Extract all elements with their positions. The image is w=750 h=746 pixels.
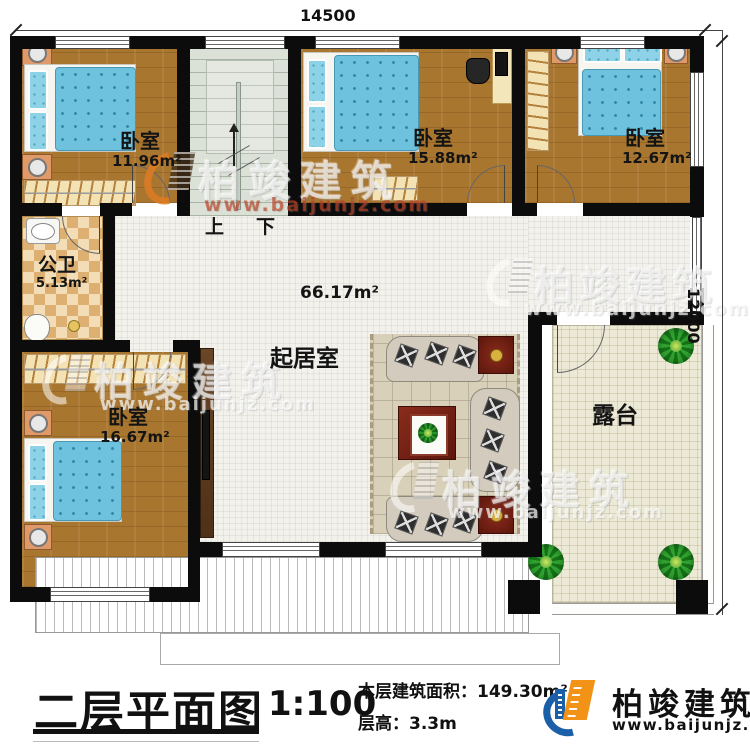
window-living-bottom-1 — [222, 542, 320, 557]
living-label: 起居室 — [270, 347, 339, 372]
bench-bedroom2 — [372, 176, 418, 201]
bed-bedroom2 — [303, 52, 419, 152]
bedroom3-area: 12.67m² — [622, 150, 692, 167]
side-table-bottom — [478, 496, 514, 534]
dimension-line-right — [722, 30, 723, 615]
floor-area-label: 本层建筑面积： — [358, 682, 477, 702]
bedroom3-label: 卧室 — [625, 127, 665, 149]
terrace-post-right — [676, 580, 708, 614]
side-table-top — [478, 336, 514, 374]
wall-b4-right — [188, 352, 200, 602]
sofa-right — [470, 388, 520, 492]
bedroom2-label: 卧室 — [413, 127, 453, 149]
dimension-top-label: 14500 — [300, 6, 356, 25]
company-logo-icon — [543, 680, 607, 738]
window-bedroom1-top — [55, 36, 130, 49]
wall-living-bottom-2 — [320, 542, 385, 557]
floor-height-line: 层高：3.3m — [358, 709, 457, 734]
window-bedroom2-top — [315, 36, 400, 49]
wall-living-bottom-1 — [200, 542, 222, 557]
bed-bedroom3 — [578, 40, 662, 136]
television — [202, 410, 210, 480]
wall-living-bottom-3 — [482, 542, 530, 557]
tv-bedroom2 — [495, 52, 508, 76]
wall-living-terrace — [528, 312, 542, 557]
floor-height-label: 层高： — [358, 714, 409, 734]
dimension-line-top — [15, 30, 722, 31]
stairs-down-label: 下 — [256, 217, 275, 238]
window-living-bottom-2 — [385, 542, 482, 557]
sofa-top — [386, 336, 484, 382]
bedroom2-area: 15.88m² — [408, 150, 478, 167]
wall-b2-b3 — [512, 36, 525, 216]
floor-drain — [68, 320, 80, 332]
bathroom-sink — [26, 218, 60, 244]
bed-bedroom4 — [24, 438, 122, 522]
sofa-bottom — [386, 496, 484, 542]
wall-hall-2 — [100, 203, 132, 216]
wall-hall-4 — [516, 203, 537, 216]
nightstand — [24, 524, 52, 550]
wardrobe-bedroom3 — [527, 51, 549, 151]
wall-bath-bottom-2 — [173, 340, 200, 352]
wall-hall-1 — [10, 203, 62, 216]
title-underline — [33, 729, 259, 734]
coffee-table — [398, 406, 456, 460]
living-area: 66.17m² — [300, 284, 379, 303]
wall-bath-right — [103, 216, 115, 340]
stairs-up-arrow — [229, 123, 239, 132]
bedroom1-area: 11.96m² — [112, 153, 182, 170]
bathroom-area: 5.13m² — [36, 277, 87, 291]
wall-b1-stairs — [177, 36, 190, 216]
terrace-plant-bottom-right — [658, 544, 694, 580]
living-room-floor-ext — [528, 216, 690, 312]
dimension-right-label: 12000 — [684, 288, 703, 344]
stairs-direction-line — [233, 132, 235, 166]
nightstand — [24, 410, 52, 436]
title-underline-thin — [33, 741, 259, 742]
window-bedroom3-right — [690, 72, 704, 167]
bathroom-label: 公卫 — [38, 255, 76, 276]
window-bedroom3-top — [580, 36, 645, 49]
roof-outline — [160, 633, 560, 665]
wall-stairs-b2 — [288, 36, 301, 216]
floor-height-value: 3.3m — [409, 714, 457, 734]
wall-hall-3 — [297, 203, 467, 216]
company-url: www.baijunjz.com — [612, 716, 750, 734]
nightstand — [22, 154, 52, 180]
wall-left — [10, 36, 22, 602]
wall-b4-bottom-2 — [150, 587, 200, 602]
window-bedroom4-bottom — [50, 587, 150, 602]
wall-hall-5 — [583, 203, 704, 216]
bathroom-toilet — [24, 314, 50, 342]
stairs-up-label: 上 — [205, 217, 224, 238]
desk-chair-bedroom2 — [466, 58, 490, 84]
window-stairs-top — [205, 36, 285, 49]
floor-plan-canvas: 柏竣建筑 www.baijunjz.com 柏竣建筑 www.baijunjz.… — [0, 0, 750, 746]
terrace-railing-right — [702, 325, 714, 603]
bedroom1-label: 卧室 — [120, 130, 160, 152]
bedroom4-label: 卧室 — [108, 406, 148, 428]
terrace-label: 露台 — [592, 404, 638, 429]
floor-area-line: 本层建筑面积：149.30m² — [358, 677, 568, 702]
wall-b4-bottom-1 — [10, 587, 50, 602]
stairs-handrail — [236, 82, 241, 210]
wall-terrace-top-1 — [540, 312, 557, 325]
wall-bath-bottom-1 — [10, 340, 130, 352]
bedroom4-area: 16.67m² — [100, 429, 170, 446]
terrace-post-left — [508, 580, 540, 614]
